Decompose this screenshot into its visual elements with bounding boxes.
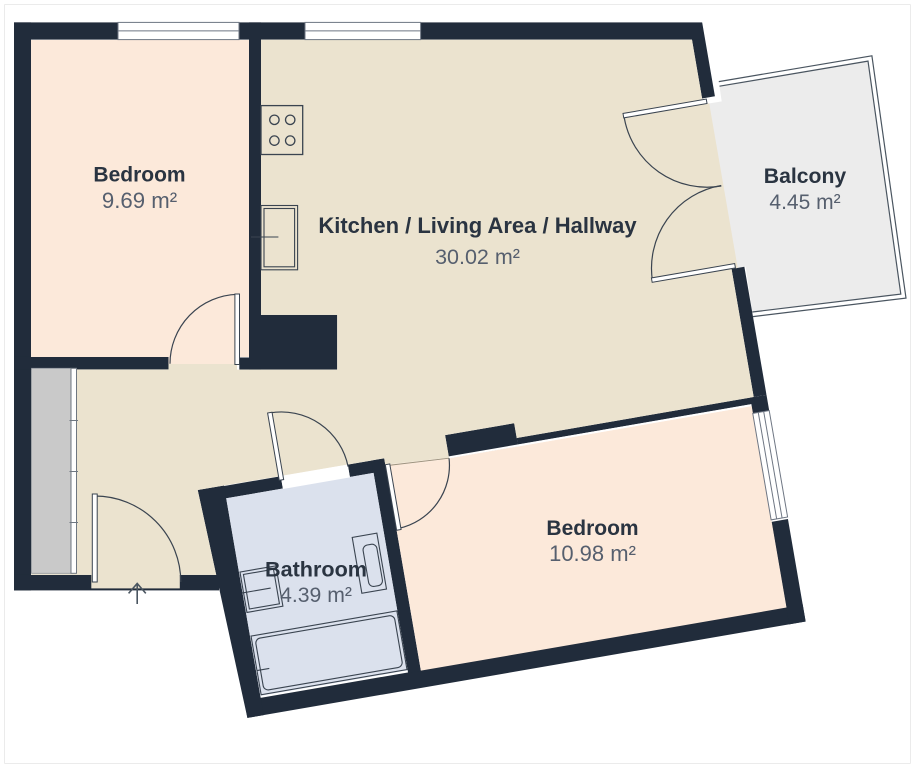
svg-text:10.98 m²: 10.98 m²	[549, 541, 636, 566]
svg-text:Kitchen / Living Area / Hallwa: Kitchen / Living Area / Hallway	[318, 213, 637, 238]
svg-text:Bedroom: Bedroom	[546, 517, 638, 540]
svg-text:Bathroom: Bathroom	[265, 557, 367, 582]
svg-text:Bedroom: Bedroom	[93, 164, 185, 187]
svg-text:9.69 m²: 9.69 m²	[102, 188, 177, 213]
svg-text:30.02 m²: 30.02 m²	[435, 245, 520, 269]
svg-text:4.39 m²: 4.39 m²	[280, 584, 352, 607]
svg-text:Balcony: Balcony	[764, 165, 847, 188]
svg-text:4.45 m²: 4.45 m²	[769, 191, 840, 214]
